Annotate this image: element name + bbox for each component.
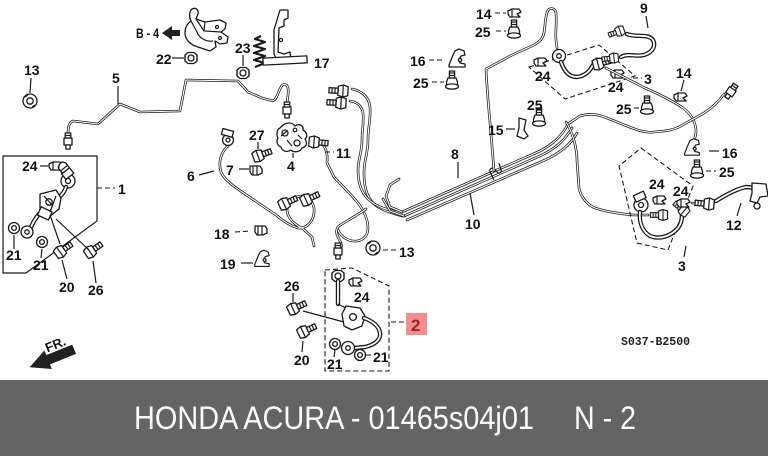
svg-text:16: 16 xyxy=(722,145,738,161)
svg-text:14: 14 xyxy=(676,65,692,81)
svg-text:5: 5 xyxy=(112,70,120,86)
svg-text:27: 27 xyxy=(249,127,265,143)
svg-text:15: 15 xyxy=(488,122,504,138)
svg-text:N - 2: N - 2 xyxy=(574,400,636,436)
svg-text:7: 7 xyxy=(226,162,234,178)
svg-text:17: 17 xyxy=(314,55,330,71)
svg-text:21: 21 xyxy=(373,349,389,365)
svg-text:8: 8 xyxy=(451,146,459,162)
svg-text:19: 19 xyxy=(220,256,236,272)
svg-text:24: 24 xyxy=(354,289,370,305)
svg-text:3: 3 xyxy=(644,71,652,87)
svg-text:13: 13 xyxy=(399,244,415,260)
svg-text:4: 4 xyxy=(287,158,295,174)
svg-text:14: 14 xyxy=(476,6,492,22)
svg-text:18: 18 xyxy=(214,226,230,242)
svg-text:22: 22 xyxy=(156,51,172,67)
svg-text:21: 21 xyxy=(6,247,22,263)
svg-text:21: 21 xyxy=(327,356,343,372)
svg-text:20: 20 xyxy=(294,352,310,368)
svg-text:24: 24 xyxy=(535,68,551,84)
svg-text:3: 3 xyxy=(678,258,686,274)
svg-text:26: 26 xyxy=(88,282,104,298)
svg-text:12: 12 xyxy=(726,217,742,233)
svg-text:20: 20 xyxy=(59,279,75,295)
svg-text:S037-B2500: S037-B2500 xyxy=(621,336,690,349)
svg-text:10: 10 xyxy=(465,216,481,232)
svg-text:9: 9 xyxy=(640,0,648,16)
svg-text:24: 24 xyxy=(22,158,38,174)
svg-text:25: 25 xyxy=(527,97,543,113)
svg-text:21: 21 xyxy=(33,257,49,273)
svg-text:2: 2 xyxy=(411,316,420,335)
svg-text:25: 25 xyxy=(413,75,429,91)
svg-text:B - 4: B - 4 xyxy=(136,25,159,41)
svg-text:25: 25 xyxy=(719,164,735,180)
svg-text:16: 16 xyxy=(410,53,426,69)
svg-text:HONDA ACURA - 01465s04j01: HONDA ACURA - 01465s04j01 xyxy=(134,400,534,436)
svg-text:6: 6 xyxy=(187,168,195,184)
svg-text:23: 23 xyxy=(235,40,251,56)
svg-text:24: 24 xyxy=(673,183,689,199)
svg-text:11: 11 xyxy=(336,145,351,161)
svg-text:13: 13 xyxy=(24,62,40,78)
svg-text:24: 24 xyxy=(608,79,624,95)
svg-text:26: 26 xyxy=(284,278,300,294)
svg-text:24: 24 xyxy=(649,176,665,192)
svg-text:1: 1 xyxy=(118,181,126,197)
svg-text:25: 25 xyxy=(475,24,491,40)
svg-text:25: 25 xyxy=(616,101,632,117)
